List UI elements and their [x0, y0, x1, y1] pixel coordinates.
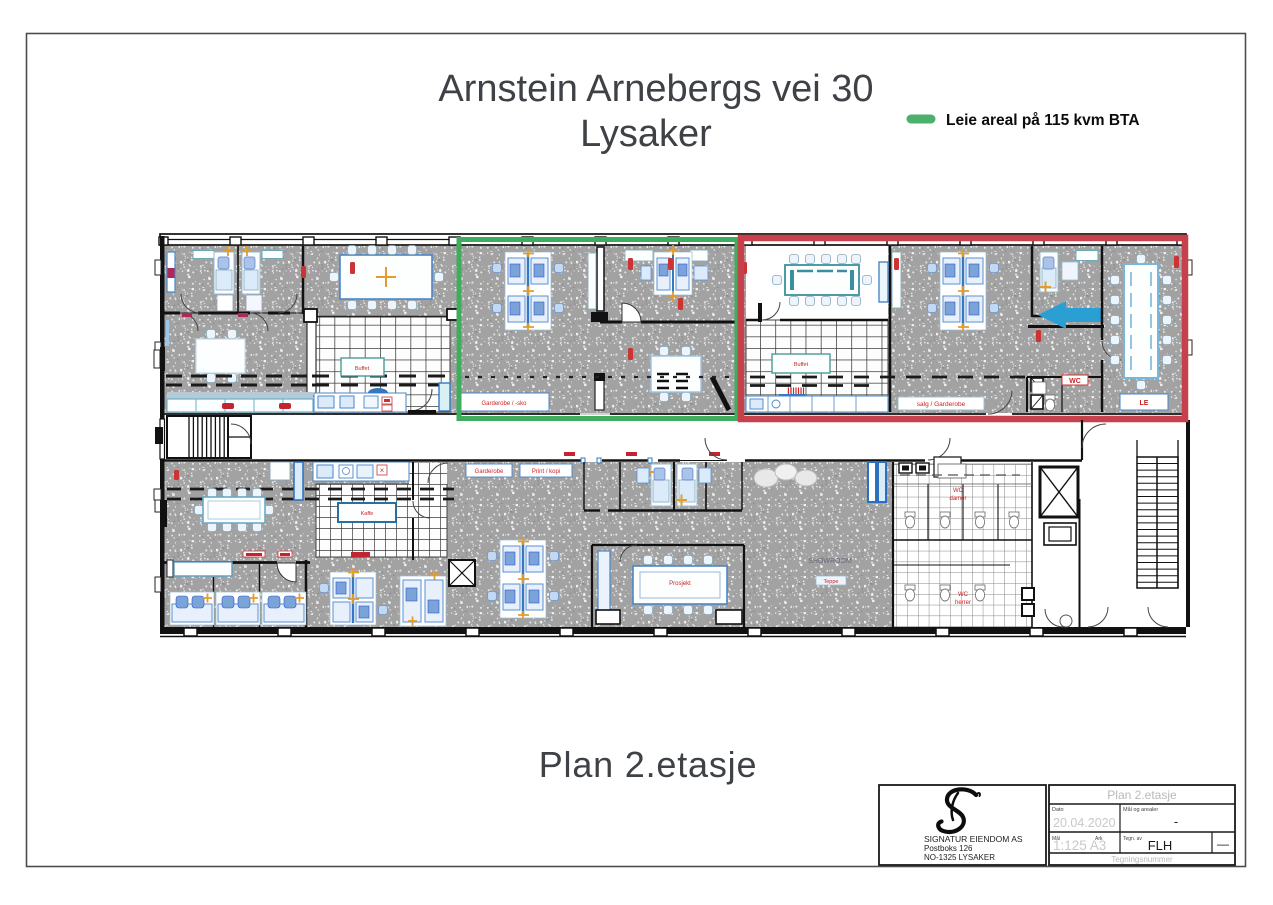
- svg-text:—: —: [1217, 837, 1229, 851]
- svg-text:Dato: Dato: [1052, 807, 1064, 813]
- svg-text:WC: WC: [958, 592, 969, 598]
- svg-text:WC: WC: [953, 488, 964, 494]
- svg-text:LE: LE: [1140, 400, 1149, 407]
- svg-text:Plan 2.etasje: Plan 2.etasje: [1107, 788, 1177, 802]
- svg-text:Ark: Ark: [1095, 836, 1103, 842]
- svg-text:WC: WC: [1069, 378, 1081, 385]
- svg-text:Teppe: Teppe: [824, 579, 839, 585]
- svg-text:Leie areal på 115 kvm BTA: Leie areal på 115 kvm BTA: [946, 112, 1140, 129]
- svg-text:FLH: FLH: [1148, 838, 1173, 853]
- svg-text:Prosjekt: Prosjekt: [669, 581, 691, 587]
- svg-text:Postboks 126: Postboks 126: [924, 844, 973, 853]
- svg-text:Tegningsnummer: Tegningsnummer: [1111, 855, 1173, 864]
- svg-text:Arnstein Arnebergs vei 30: Arnstein Arnebergs vei 30: [438, 68, 873, 110]
- svg-text:Garderobe: Garderobe: [475, 469, 504, 475]
- svg-text:20.04.2020: 20.04.2020: [1053, 816, 1116, 830]
- svg-text:Buffet: Buffet: [355, 366, 370, 372]
- svg-text:NO-1325 LYSAKER: NO-1325 LYSAKER: [924, 853, 995, 862]
- svg-text:Tegn. av: Tegn. av: [1123, 836, 1142, 842]
- svg-text:Garderobe / -sko: Garderobe / -sko: [481, 401, 527, 407]
- svg-text:salg / Garderobe: salg / Garderobe: [917, 401, 966, 408]
- svg-text:Kaffe: Kaffe: [361, 511, 374, 517]
- svg-text:SIGNATUR EIENDOM AS: SIGNATUR EIENDOM AS: [924, 834, 1023, 844]
- svg-text:Mål og arealer: Mål og arealer: [1123, 806, 1158, 813]
- svg-text:Buffet: Buffet: [794, 362, 809, 368]
- svg-text:damer: damer: [949, 496, 966, 502]
- svg-text:×: ×: [380, 466, 385, 475]
- svg-text:Print / kopi: Print / kopi: [532, 469, 560, 475]
- svg-text:herrer: herrer: [955, 600, 971, 606]
- svg-text:Plan 2.etasje: Plan 2.etasje: [539, 744, 758, 785]
- svg-text:Lysaker: Lysaker: [580, 113, 712, 155]
- svg-text:-: -: [1174, 814, 1178, 829]
- svg-text:SHOWROOM: SHOWROOM: [808, 558, 852, 565]
